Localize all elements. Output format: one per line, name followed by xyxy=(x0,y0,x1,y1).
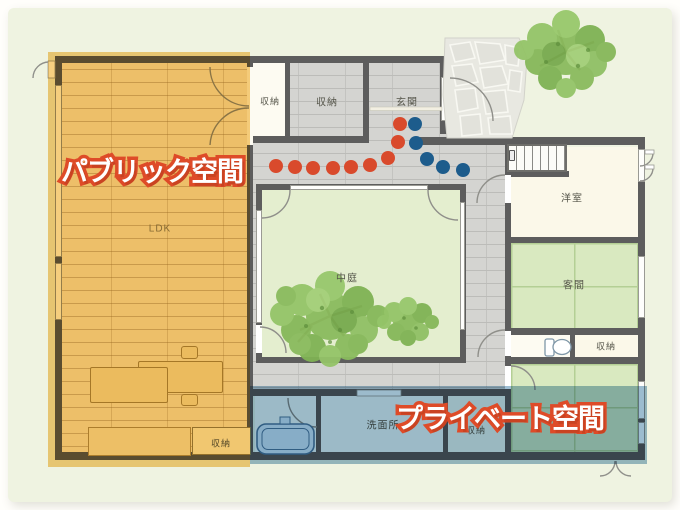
flow-dot-red xyxy=(391,135,405,149)
flow-dot-red xyxy=(363,158,377,172)
flow-dot-red xyxy=(288,160,302,174)
flow-dot-red xyxy=(326,161,340,175)
flow-dot-red xyxy=(344,160,358,174)
flow-dot-red xyxy=(393,117,407,131)
flow-dot-blue xyxy=(409,136,423,150)
floor-plan: LDK 収納 収納 玄関 洋室 客間 中庭 収納 洗面所 収納 収納 パブリック… xyxy=(0,0,680,510)
flow-dot-red xyxy=(306,161,320,175)
flow-dot-blue xyxy=(456,163,470,177)
flow-dot-blue xyxy=(436,160,450,174)
public-zone-label: パブリック空間 xyxy=(61,150,243,189)
flow-dot-blue xyxy=(420,152,434,166)
private-zone-label: プライベート空間 xyxy=(396,397,604,436)
public-zone-overlay xyxy=(48,52,250,467)
flow-dot-red xyxy=(269,159,283,173)
flow-dot-red xyxy=(381,151,395,165)
flow-dot-blue xyxy=(408,117,422,131)
